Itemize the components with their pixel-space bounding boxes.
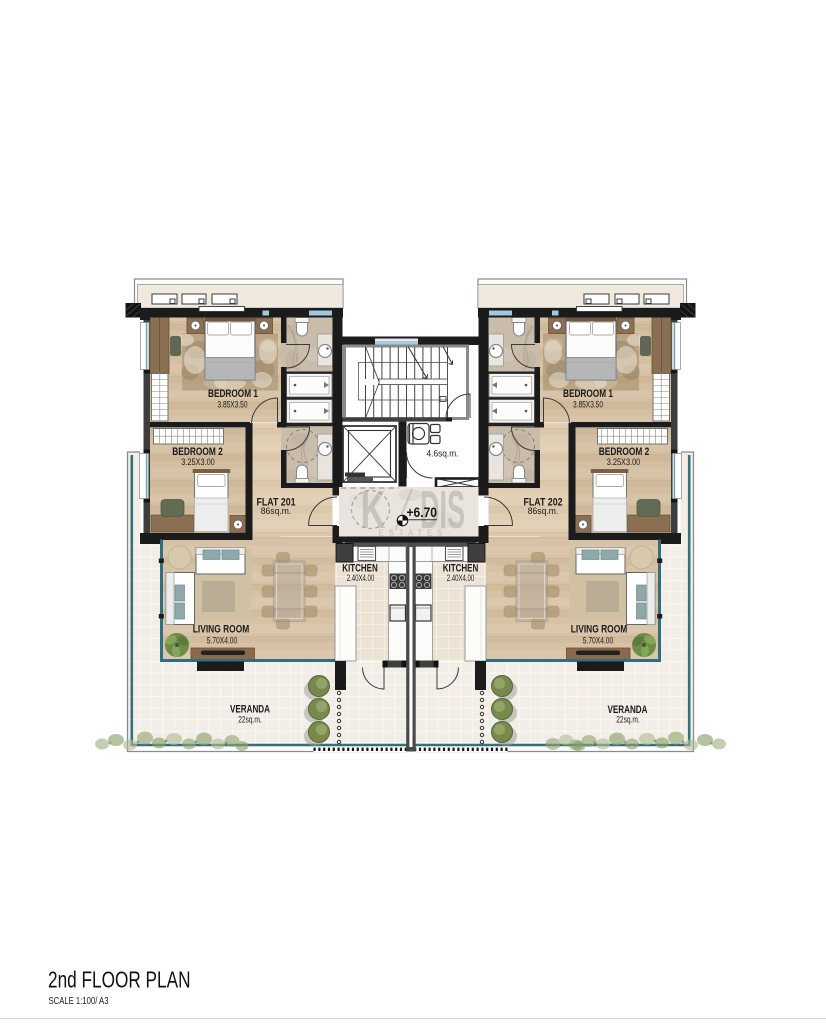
svg-text:86sq.m.: 86sq.m. — [528, 506, 559, 516]
svg-text:2.40X4.00: 2.40X4.00 — [447, 573, 475, 583]
svg-text:3.25X3.00: 3.25X3.00 — [607, 457, 641, 467]
svg-text:SCALE 1:100/ A3: SCALE 1:100/ A3 — [49, 996, 109, 1007]
svg-text:5.70X4.00: 5.70X4.00 — [583, 636, 614, 646]
svg-text:22sq.m.: 22sq.m. — [616, 715, 640, 725]
svg-text:22sq.m.: 22sq.m. — [238, 715, 262, 725]
svg-text:3.85X3.50: 3.85X3.50 — [573, 400, 603, 410]
svg-text:BEDROOM 1: BEDROOM 1 — [563, 388, 613, 400]
svg-text:LIVING ROOM: LIVING ROOM — [193, 624, 250, 636]
svg-text:3.85X3.50: 3.85X3.50 — [218, 400, 248, 410]
svg-text:LIVING ROOM: LIVING ROOM — [571, 624, 628, 636]
svg-text:5.70X4.00: 5.70X4.00 — [207, 636, 238, 646]
svg-text:2nd FLOOR PLAN: 2nd FLOOR PLAN — [48, 967, 191, 993]
svg-text:86sq.m.: 86sq.m. — [261, 506, 292, 516]
svg-text:+6.70: +6.70 — [407, 505, 438, 520]
svg-text:4.6sq.m.: 4.6sq.m. — [427, 449, 459, 459]
svg-text:2.40X4.00: 2.40X4.00 — [347, 573, 375, 583]
svg-text:3.25X3.00: 3.25X3.00 — [181, 457, 215, 467]
svg-text:BEDROOM 1: BEDROOM 1 — [208, 388, 258, 400]
